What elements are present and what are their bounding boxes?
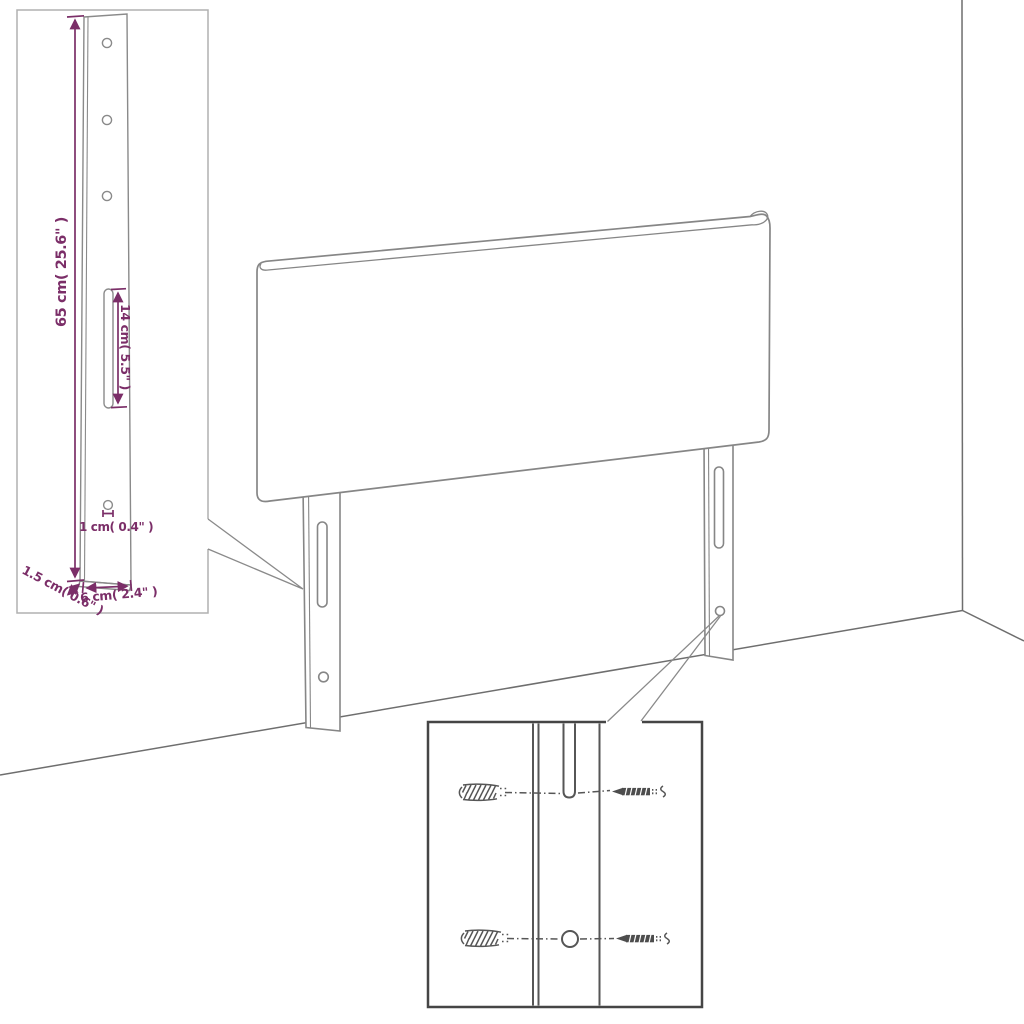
hardware-callout — [428, 722, 702, 1007]
diagram-linework — [0, 0, 1024, 1024]
left-leg-hole — [319, 672, 329, 682]
slot-length-label: 14 cm( 5.5" ) — [115, 287, 135, 407]
floor-line-right — [963, 611, 1024, 642]
callout-pointer-lines — [208, 519, 303, 589]
leg-height-label: 65 cm( 25.6" ) — [52, 197, 72, 347]
right-leg-slot — [715, 467, 724, 548]
headboard-panel — [257, 211, 770, 501]
left-leg-slot — [318, 522, 328, 607]
hole-diameter-label: 1 cm( 0.4" ) — [79, 517, 143, 537]
left-leg — [303, 480, 340, 731]
headboard-assembly-diagram: 65 cm( 25.6" ) 14 cm( 5.5" ) 1 cm( 0.4" … — [0, 0, 1024, 1024]
wall-corner-line — [962, 0, 963, 611]
right-leg-hole — [716, 607, 725, 616]
